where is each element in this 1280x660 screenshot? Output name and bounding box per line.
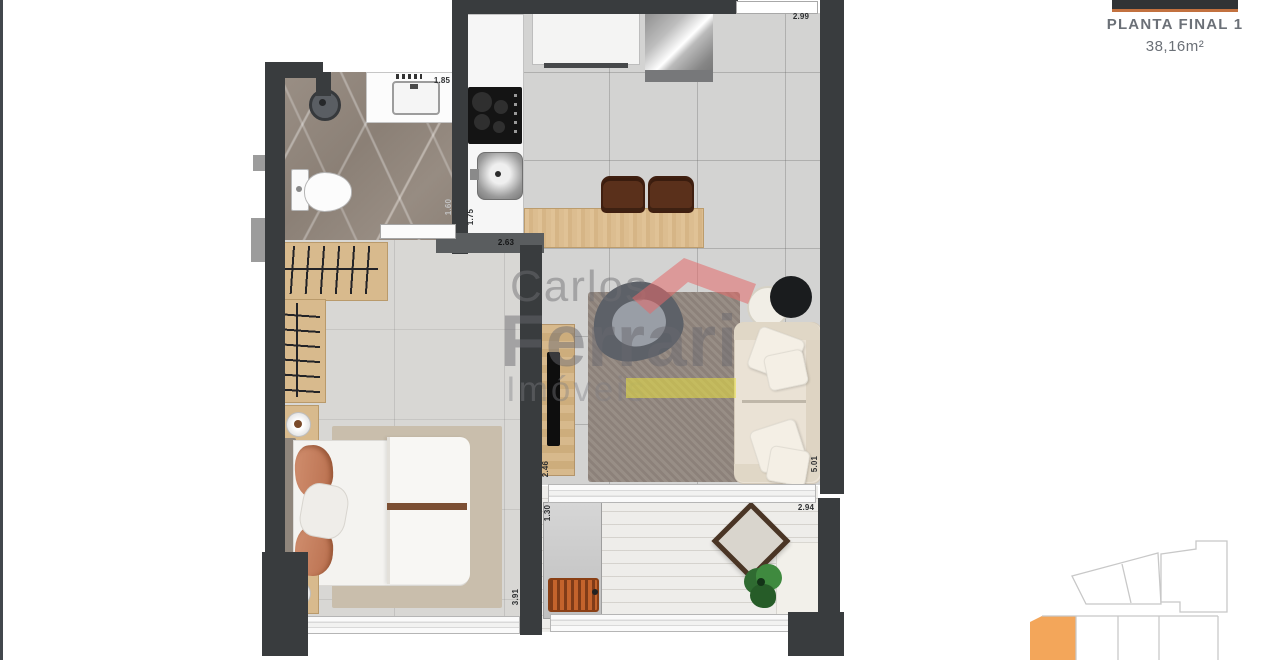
dining-chair [601, 176, 645, 213]
measurement-label: 1.60 [444, 192, 454, 222]
key-plan [1028, 538, 1240, 660]
measurement-label: 1.85 [427, 76, 457, 86]
wall [265, 62, 285, 556]
plan-area: 38,16m² [1085, 38, 1265, 55]
wall [818, 498, 840, 616]
kitchen-sink-tap [470, 169, 479, 180]
window-bedroom [306, 616, 520, 634]
cooktop-knobs [514, 94, 517, 136]
wall-shaft [251, 218, 266, 262]
measurement-label: 1.30 [543, 498, 553, 528]
refrigerator-base [645, 70, 713, 82]
plan-name: PLANTA FINAL 1 [1085, 16, 1265, 33]
grill [548, 578, 599, 612]
grill-knob [592, 589, 598, 595]
closet-hangers [280, 246, 378, 294]
key-plan-highlight-unit [1030, 616, 1076, 660]
duvet-stripe [387, 503, 467, 510]
measurement-label: 3.91 [511, 582, 521, 612]
lamp-center [294, 420, 302, 428]
wall [265, 62, 323, 78]
faucet-marks [396, 74, 422, 79]
measurement-label: 2.46 [541, 454, 551, 484]
shower-drain [319, 99, 326, 106]
cooktop-burner [474, 114, 490, 130]
side-table-black [770, 276, 812, 318]
plant-pot [757, 578, 765, 586]
plant [750, 584, 776, 608]
measurement-label: 5.01 [810, 449, 820, 479]
bathroom-door [380, 224, 456, 239]
wall [520, 245, 542, 635]
wall [820, 0, 844, 494]
measurement-label: 2.63 [491, 238, 521, 248]
window-balcony [550, 614, 795, 632]
measurement-label: 2.99 [786, 12, 816, 22]
upper-cabinet [532, 13, 640, 65]
toilet-flush-button [296, 186, 302, 192]
sofa-seat-line [742, 400, 806, 403]
wall [788, 612, 844, 656]
closet-rod [296, 303, 298, 397]
sofa-pillow [765, 445, 811, 487]
page-left-border [0, 0, 3, 660]
closet-rod [280, 268, 378, 270]
dining-counter [524, 208, 704, 248]
window-living-balcony [548, 484, 816, 503]
measurement-label: 2.94 [791, 503, 821, 513]
cooktop-burner [472, 92, 492, 112]
cooktop-burner [493, 121, 505, 133]
title-bar [1112, 0, 1238, 12]
wall [316, 72, 331, 96]
dining-chair [648, 176, 694, 213]
tv [547, 352, 560, 446]
cabinet-shadow [544, 63, 628, 68]
sink-faucet [410, 84, 418, 89]
measurement-label: 1.75 [466, 202, 476, 232]
cooktop-burner [494, 100, 508, 114]
wall [262, 552, 308, 656]
kitchen-sink-drain [495, 171, 501, 177]
bed-duvet [387, 437, 470, 584]
wall [452, 0, 738, 14]
